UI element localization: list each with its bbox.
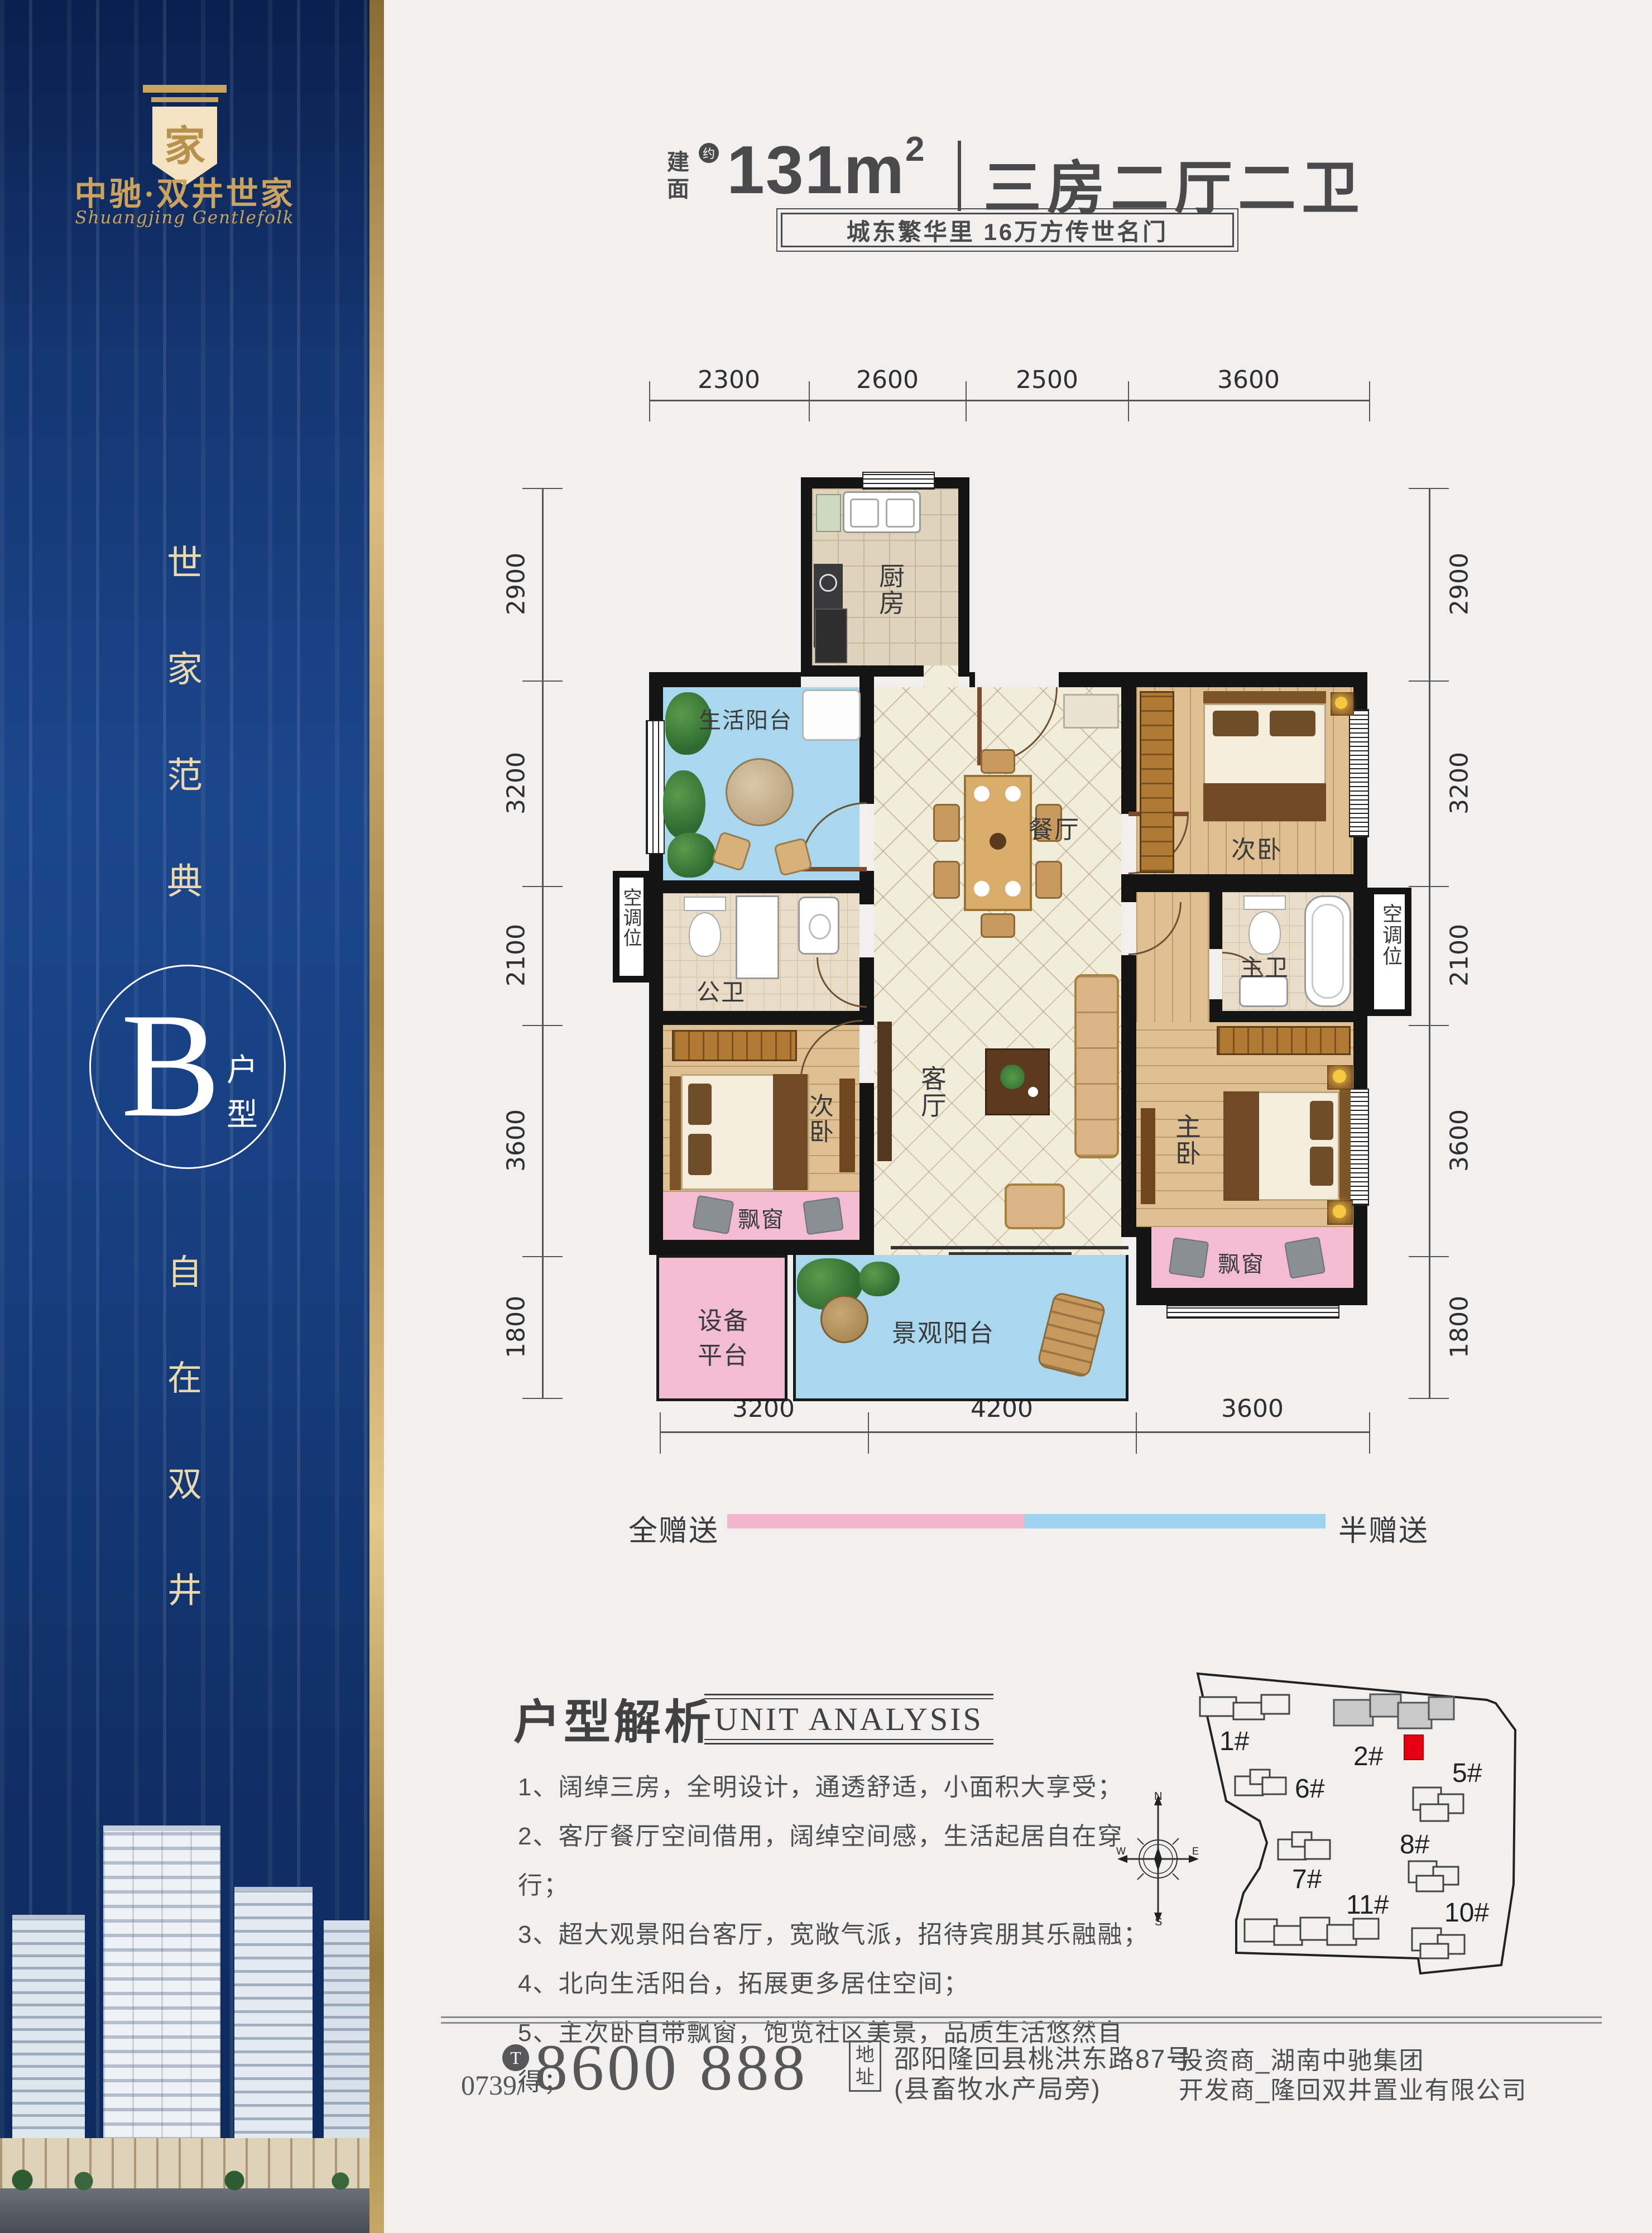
analysis-item-1: 1、阔绰三房，全明设计，通透舒适，小面积大享受； (518, 1763, 1165, 1812)
slogan2-char-zi: 自 (0, 1244, 369, 1294)
cluster-8 (1409, 1861, 1458, 1891)
life-balcony-label: 生活阳台 (699, 702, 793, 735)
equipment-label-2: 平台 (698, 1335, 749, 1371)
bed-bl-headboard (670, 1076, 681, 1190)
dining-chair-l2 (933, 861, 960, 899)
dim-top-3: 2500 (1016, 366, 1078, 394)
dim-right-4: 3600 (1445, 1109, 1474, 1172)
ac-right-label: 空调位 (1380, 903, 1402, 967)
water-heater (802, 689, 861, 741)
address-line-2: (县畜牧水产局旁) (894, 2069, 1101, 2106)
kitchen-label: 厨房 (874, 563, 906, 616)
phone-number: 8600 888 (535, 2030, 809, 2106)
master-toilet-tank (1243, 895, 1286, 910)
master-bay-steps (1166, 1305, 1339, 1319)
sofa-armchair (1005, 1183, 1065, 1229)
tv-cabinet (877, 1022, 892, 1161)
bay-master-pillow-2 (1284, 1237, 1326, 1279)
cluster-10 (1412, 1928, 1464, 1958)
dining-chair-l1 (933, 804, 960, 842)
bay-left-label: 飘窗 (738, 1201, 785, 1234)
logo-character: 家 (164, 113, 205, 172)
dim-top-1: 2300 (698, 366, 760, 394)
sidebar: 家 中驰·双井世家 Shuangjing Gentlefolk 世 家 范 典 … (0, 0, 369, 2233)
cluster-5 (1413, 1788, 1463, 1821)
dim-left-1: 2900 (502, 553, 531, 615)
compass-n: N (1154, 1792, 1162, 1803)
master-bed-headboard (1339, 1090, 1351, 1201)
bed-top-body (1203, 703, 1326, 822)
balcony-sliding-door (891, 1246, 1128, 1249)
cluster-6 (1235, 1770, 1286, 1795)
area-value: 131m2 (727, 130, 925, 209)
lamp-tr-1 (1335, 697, 1347, 709)
area-prefix-2: 面 (667, 171, 689, 203)
bedroom-top-label: 次卧 (1231, 830, 1283, 865)
balcony-window (646, 720, 665, 854)
dim-right-line (1429, 488, 1430, 1398)
coffee-table (985, 1048, 1050, 1115)
master-bath-label: 主卫 (1240, 949, 1289, 983)
phone-icon-letter: T (510, 2048, 521, 2068)
analysis-item-4: 4、北向生活阳台，拓展更多居住空间； (518, 1959, 1165, 2009)
bedroom-top-window (1349, 709, 1369, 837)
building-label-1: 1# (1219, 1727, 1250, 1756)
dim-left-5: 1800 (502, 1296, 531, 1358)
dim-right-2: 3200 (1445, 752, 1474, 814)
approx-badge: 约 (699, 143, 719, 163)
building-rendering (0, 1753, 369, 2233)
footer-divider-2 (441, 2022, 1602, 2024)
master-bathtub (1304, 895, 1351, 1007)
bed-top-headboard (1203, 691, 1326, 703)
analysis-title-en: UNIT ANALYSIS (714, 1701, 983, 1737)
cluster-11 (1245, 1918, 1379, 1945)
compass-w: W (1116, 1846, 1126, 1857)
dim-bottom-line (660, 1431, 1369, 1433)
legend-half-bar (1025, 1514, 1326, 1528)
public-sink (798, 897, 839, 955)
legend-half-label: 半赠送 (1338, 1507, 1429, 1549)
slogan2-char-jing: 井 (0, 1562, 369, 1612)
dim-top-2: 2600 (856, 366, 919, 394)
slogan2-char-shuang: 双 (0, 1456, 369, 1506)
building-label-5: 5# (1452, 1758, 1482, 1788)
unit-badge-letter: B (109, 987, 232, 1143)
bay-master-pillow-1 (1169, 1237, 1209, 1278)
bedroom-bl-dresser (839, 1079, 855, 1172)
balcony-table (726, 758, 794, 826)
bay-left-pillow-1 (692, 1195, 734, 1235)
bed-bl-body (681, 1074, 809, 1190)
developer-line: 开发商_隆回双井置业有限公司 (1179, 2070, 1527, 2106)
analysis-item-3: 3、超大观景阳台客厅，宽敞气派，招待宾朋其乐融融； (518, 1910, 1165, 1959)
subtitle-text: 城东繁华里 16万方传世名门 (847, 213, 1168, 247)
living-label: 客厅 (915, 1065, 949, 1119)
unit-badge-type-1: 户 (227, 1045, 258, 1090)
dim-right-5: 1800 (1445, 1296, 1474, 1358)
bay-master-label: 飘窗 (1218, 1246, 1265, 1278)
master-wardrobe (1217, 1026, 1351, 1055)
dim-bottom-3: 3600 (1221, 1395, 1284, 1423)
dim-left-2: 3200 (502, 752, 531, 814)
master-window (1349, 1089, 1369, 1206)
bedroom-bottom-label: 次卧 (803, 1093, 835, 1144)
slogan-char-fan: 范 (0, 747, 369, 798)
building-label-11: 11# (1346, 1890, 1389, 1920)
compass-s: S (1155, 1916, 1162, 1926)
analysis-item-2: 2、客厅餐厅空间借用，阔绰空间感，生活起居自在穿行； (518, 1812, 1165, 1910)
gold-divider-strip (369, 0, 384, 2233)
view-balcony-table (820, 1295, 868, 1343)
phone-prefix: 0739/ (461, 2069, 525, 2101)
approx-badge-text: 约 (703, 144, 715, 162)
building-label-10: 10# (1444, 1898, 1489, 1928)
building-label-2: 2# (1353, 1742, 1384, 1771)
dining-table (964, 775, 1032, 911)
public-shower (736, 895, 779, 979)
building-label-8: 8# (1400, 1830, 1430, 1860)
master-bed-body (1223, 1091, 1339, 1201)
highlight-unit (1404, 1735, 1423, 1760)
poster: 家 中驰·双井世家 Shuangjing Gentlefolk 世 家 范 典 … (0, 0, 1652, 2233)
brand-name-en: Shuangjing Gentlefolk (0, 208, 369, 228)
logo-pillar-bar-1 (143, 85, 227, 93)
cluster-2 (1334, 1694, 1454, 1728)
sofa-long (1074, 974, 1119, 1158)
dim-left-3: 2100 (502, 924, 531, 986)
kitchen-appliance (816, 494, 841, 532)
analysis-title-en-box: UNIT ANALYSIS (704, 1694, 993, 1745)
building-label-7: 7# (1292, 1865, 1322, 1894)
phone-icon: T (502, 2044, 529, 2071)
ac-left-label: 空调位 (621, 888, 641, 948)
logo-pillar-bar-2 (151, 97, 218, 102)
kitchen-window (862, 472, 935, 490)
dim-right-3: 2100 (1445, 924, 1474, 986)
dim-left-line (542, 488, 544, 1398)
address-label-box: 地 址 (849, 2040, 881, 2092)
address-label-2: 址 (856, 2066, 875, 2088)
dining-chair-r2 (1035, 861, 1062, 899)
kitchen-sink (843, 491, 921, 533)
analysis-title-cn: 户型解析 (513, 1685, 714, 1752)
cluster-7 (1278, 1832, 1330, 1860)
street (0, 2188, 369, 2233)
legend-full-label: 全赠送 (628, 1507, 719, 1549)
site-map: 1# 2# 5# 6# 7# 8# 11# 10# (1194, 1669, 1529, 2026)
bay-left-pillow-2 (803, 1197, 844, 1235)
dim-left-4: 3600 (502, 1109, 531, 1172)
slogan-char-shi: 世 (0, 535, 369, 586)
dim-right-1: 2900 (1445, 553, 1474, 615)
compass: N S W E (1116, 1792, 1200, 1926)
dim-top-4: 3600 (1217, 366, 1280, 394)
view-balcony-label: 景观阳台 (892, 1313, 995, 1349)
dim-top-line (649, 400, 1369, 401)
lamp-m-1 (1333, 1070, 1346, 1083)
public-toilet-tank (684, 897, 726, 911)
master-dresser (1141, 1108, 1155, 1204)
address-label-1: 地 (856, 2044, 875, 2066)
building-label-6: 6# (1295, 1774, 1325, 1804)
master-toilet-bowl (1248, 911, 1281, 955)
lamp-m-2 (1333, 1205, 1346, 1218)
title-divider (958, 141, 961, 211)
bedroom-bottom-wardrobe (672, 1030, 797, 1061)
kitchen-door-gap (924, 665, 958, 687)
balcony-sliding-door-2 (949, 1252, 1072, 1255)
legend-full-bar (727, 1514, 1025, 1528)
equipment-label-1: 设备 (698, 1301, 749, 1336)
subtitle-box: 城东繁华里 16万方传世名门 (781, 213, 1234, 247)
slogan-char-dian: 典 (0, 853, 369, 904)
dining-sideboard (1063, 694, 1119, 729)
slogan2-char-zai: 在 (0, 1350, 369, 1400)
unit-badge-type-2: 型 (227, 1090, 258, 1135)
kitchen-cabinet (815, 608, 847, 663)
public-bath-label: 公卫 (697, 974, 746, 1008)
master-label: 主卧 (1170, 1113, 1203, 1167)
dining-chair-top (981, 749, 1015, 774)
tree-row (0, 2167, 369, 2193)
public-toilet-bowl (689, 912, 721, 957)
slogan-char-jia: 家 (0, 641, 369, 692)
dining-label: 餐厅 (1029, 809, 1080, 845)
dining-chair-bottom (981, 913, 1015, 938)
cluster-1 (1200, 1695, 1289, 1719)
bedroom-top-wardrobe (1140, 691, 1174, 873)
footer-divider-1 (441, 2016, 1602, 2018)
